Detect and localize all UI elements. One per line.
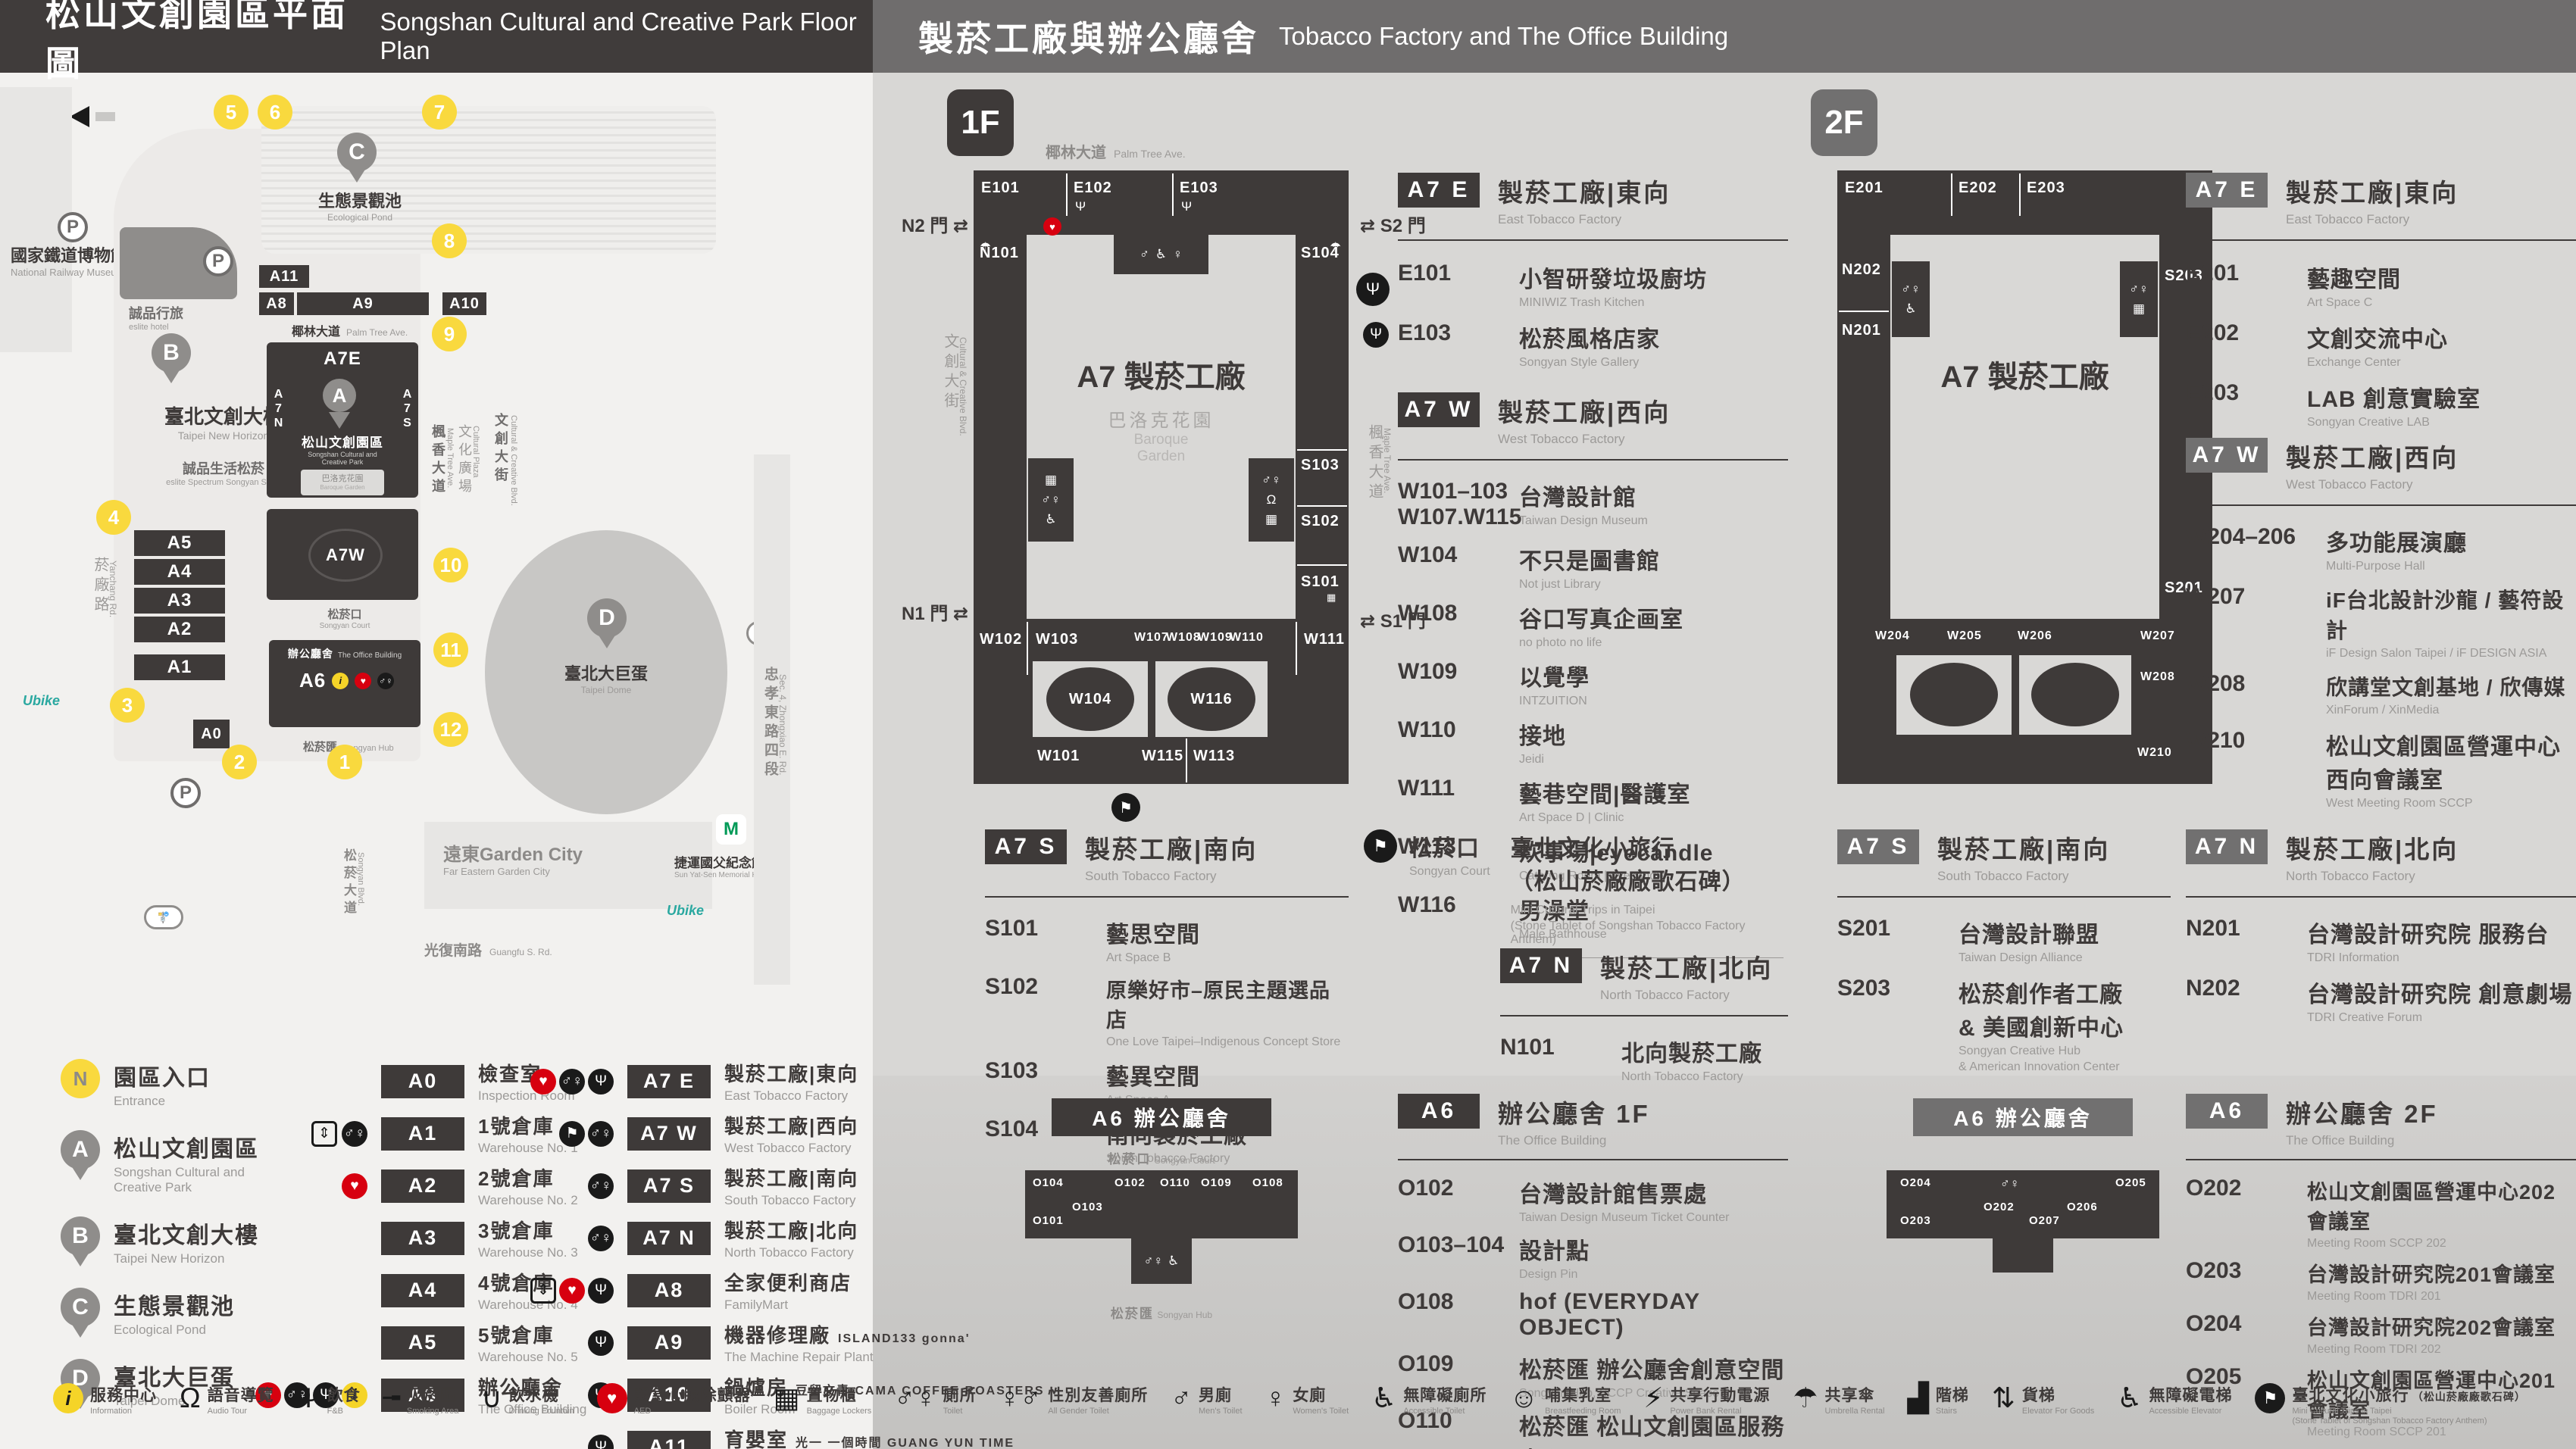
item-code: O203: [2186, 1258, 2307, 1304]
mini-trips-icon: ⚑: [2255, 1383, 2285, 1413]
sec-a7s-zh: 製菸工廠|南向: [1085, 829, 1258, 866]
sec-a7e-en: East Tobacco Factory: [1498, 212, 1671, 227]
item-zh: 文創交流中心: [2307, 320, 2448, 354]
palm-zh: 椰林大道: [292, 321, 340, 339]
item-zh: 原樂好市–原民主題選品店: [1106, 974, 1349, 1033]
guangfu-zh: 光復南路: [424, 939, 482, 960]
toilet-icon: ♂♀: [342, 1121, 367, 1147]
fnb-icon: Ψ: [1363, 322, 1389, 348]
baroque-plan-zh: 巴洛克花園: [1108, 405, 1215, 432]
room-w104: W104: [1069, 691, 1111, 708]
room-w115: W115: [1142, 748, 1183, 765]
entrance-6-num: 6: [270, 101, 280, 124]
a7n-en: North Tobacco Factory: [724, 1245, 858, 1260]
a6-2f-stub: [1993, 1238, 2053, 1273]
item-zh2: 西向會議室: [2326, 761, 2561, 795]
room-w205: W205: [1947, 629, 1982, 643]
item-en: Taiwan Design Museum Ticket Counter: [1519, 1211, 1729, 1225]
legend-n-sym: N: [73, 1067, 88, 1091]
building-a0: A0: [193, 720, 230, 748]
room-w108: W108: [1166, 631, 1201, 645]
stairs-icon: ▟: [1907, 1383, 1928, 1413]
floor-plan-2f: E201 E202 E203 N202 N201 S203 S201 A7 製菸…: [1837, 170, 2212, 784]
sec-badge: A7 E: [1398, 173, 1480, 208]
sec-a7n-zh: 製菸工廠|北向: [1600, 948, 1773, 985]
toilet-icon: ♂: [1140, 247, 1149, 262]
legend-park: A 松山文創園區 Songshan Cultural and Creative …: [61, 1130, 280, 1195]
a7w-label: A7W: [326, 545, 365, 565]
mens-toilet-icon: ♂: [1171, 1383, 1192, 1413]
room-o109: O109: [1201, 1176, 1232, 1189]
item-en: Meeting Room TDRI 202: [2307, 1343, 2556, 1357]
item-en: Art Space B: [1106, 951, 1200, 965]
strip-zh: 女廁: [1293, 1387, 1326, 1404]
item-code: W210: [2186, 728, 2326, 810]
court-zh: 松菸口: [303, 606, 386, 622]
toilet-icon: ♂♀: [377, 673, 394, 689]
toilet-icon: ♂♀: [1041, 492, 1061, 507]
strip-zh: 無障礙電梯: [2149, 1387, 2232, 1404]
a7e-label: A7E: [324, 348, 361, 370]
room-o203: O203: [1900, 1214, 1931, 1227]
item-code: S203: [1837, 976, 1959, 1074]
room-w111: W111: [1304, 631, 1345, 648]
toilet-icon: ♂♀: [559, 1069, 585, 1095]
entrance-3: 3: [110, 688, 145, 723]
room-w110: W110: [1230, 631, 1264, 645]
a6-court-label: 松菸口 Songyan Court: [1108, 1148, 1215, 1167]
a7n-zh: 製菸工廠|北向: [724, 1216, 858, 1244]
strip-en: Mini Cultural Trips in Taipei: [2292, 1407, 2525, 1416]
a7n-code: A7 N: [642, 1226, 696, 1250]
park-en1: Songshan Cultural and: [278, 451, 407, 458]
item-zh: 以覺學: [1519, 659, 1590, 692]
room-w102: W102: [980, 631, 1022, 648]
building-a8: A8: [259, 292, 294, 315]
legend-a9: Ψ A9 機器修理廠ISLAND133 gonna' The Machine R…: [523, 1320, 1045, 1365]
palm-ave-label-plan: 椰林大道 Palm Tree Ave.: [1046, 140, 1186, 162]
a11-label: A11: [270, 268, 299, 286]
office-label: 辦公廳舍 The Office Building: [288, 646, 402, 661]
a6-1f-title-bar: A6 辦公廳舍: [1052, 1098, 1271, 1136]
strip-en: Accessible Elevator: [2149, 1407, 2232, 1416]
right-title-en: Tobacco Factory and The Office Building: [1279, 22, 1728, 51]
item-zh: 松山文創園區營運中心: [2326, 728, 2561, 761]
a6-1f-shape: O104 O103 O102 O110 O109 O108 O101: [1025, 1170, 1298, 1238]
room-w204: W204: [1875, 629, 1910, 643]
item-en: Art Space D | Clinic: [1519, 811, 1690, 825]
facility-strip: i 服務中心 Information Ω 語音導覽 Audio Tour Ψ 飲…: [53, 1383, 2526, 1426]
zhongxiao-en: Sec. 4, Zhongxiao E. Rd.: [777, 674, 788, 775]
strip-stairs: ▟ 階梯 Stairs: [1907, 1383, 1968, 1416]
strip-accessible-elevator: ♿ 無障礙電梯 Accessible Elevator: [2117, 1383, 2232, 1416]
accessible-elevator-icon: ♿: [2117, 1383, 2142, 1413]
item-zh: 台灣設計聯盟: [1959, 916, 2099, 949]
strip-breastfeeding: ☺ 哺集乳室 Breastfeeding Room: [1509, 1383, 1621, 1416]
room-s101: S101: [1301, 573, 1340, 591]
locker-icon: ▦: [2133, 301, 2145, 317]
entrance-7: 7: [422, 95, 457, 130]
aed-icon: ♥: [342, 1173, 367, 1199]
plaza-label-en: Cultural Plaza: [471, 426, 480, 477]
pin-a-letter: A: [333, 384, 347, 408]
strip-en: Baggage Lockers: [807, 1407, 872, 1416]
maple-label-en: Maple Tree Ave.: [445, 428, 455, 488]
room-s103: S103: [1301, 457, 1340, 474]
item-en2: & American Innovation Center: [1959, 1060, 2124, 1074]
pond-en: Ecological Pond: [292, 212, 428, 223]
info-icon: i: [332, 673, 349, 689]
umbrella-icon: ☂: [980, 240, 991, 255]
a6-map-row: A6 i ♥ ♂♀: [299, 669, 394, 692]
item-zh: hof (EVERYDAY OBJECT): [1519, 1289, 1788, 1341]
room-w208: W208: [2140, 670, 2175, 684]
facility-2f: ♂♀ ♿: [1892, 261, 1930, 337]
a7w-badge: A7 W: [627, 1117, 711, 1151]
room-w103: W103: [1036, 631, 1078, 648]
badge-a6-1f: A6: [1421, 1098, 1456, 1124]
bus-stop-icon: 🚏: [144, 905, 183, 929]
strip-zh: 服務中心: [90, 1387, 157, 1404]
a7w-code: A7 W: [640, 1122, 698, 1145]
strip-en: Stairs: [1936, 1407, 1969, 1416]
east-wing-2f: [1837, 170, 2212, 235]
building-a7w: A7W: [267, 509, 418, 600]
a6-plan-1f: A6 辦公廳舍 松菸口 Songyan Court O104 O103 O102…: [1010, 1083, 1313, 1371]
strip-toilet: ♂♀ 廁所 Toilet: [894, 1383, 977, 1416]
audio-tour-icon: Ω: [1267, 492, 1277, 507]
item-zh: 接地: [1519, 717, 1566, 751]
room-w101: W101: [1037, 748, 1080, 765]
a4-code: A4: [408, 1279, 438, 1302]
park-en2: Creative Park: [278, 458, 407, 466]
badge-2f-a7n: A7 N: [2195, 834, 2259, 860]
pond-label: 生態景觀池 Ecological Pond: [292, 188, 428, 223]
west-facility-block: ▦ ♂♀ ♿: [1028, 458, 1074, 542]
a7w-en: West Tobacco Factory: [724, 1141, 858, 1156]
eslite-hotel-en: eslite hotel: [129, 323, 183, 332]
a2-code: A2: [408, 1174, 438, 1198]
sec-2f-a7s-en: South Tobacco Factory: [1937, 869, 2110, 884]
north-wing: [974, 235, 1027, 619]
elevator-icon: ⇕: [311, 1121, 337, 1147]
a8-zh: 全家便利商店: [724, 1268, 852, 1296]
badge-2f-a7s: A7 S: [1847, 834, 1910, 860]
court-en: Songyan Court: [303, 622, 386, 630]
sec-a7w-zh: 製菸工廠|西向: [1498, 392, 1671, 429]
court-title-en: Songyan Court: [1409, 865, 1499, 879]
legend-a7s: ♂♀ A7 S 製菸工廠|南向 South Tobacco Factory: [523, 1163, 1045, 1208]
floor-2f-label: 2F: [1824, 104, 1863, 142]
court-t1: 臺北文化小旅行: [1511, 829, 1788, 863]
fnb-icon: Ψ: [588, 1330, 614, 1356]
pin-a: A: [323, 379, 356, 412]
north-wing-2f: [1837, 235, 1890, 619]
a5-code: A5: [408, 1331, 438, 1354]
a7n-label: A7N: [271, 388, 285, 431]
all-gender-toilet-icon: ♀♂: [999, 1383, 1042, 1413]
court-label: 松菸口 Songyan Court: [303, 606, 386, 630]
item-en: Multi-Purpose Hall: [2326, 560, 2467, 573]
a3-code: A3: [408, 1226, 438, 1250]
fnb-icon: Ψ: [297, 1383, 320, 1413]
item-en: Art Space C: [2307, 296, 2401, 310]
legend-new-horizon: B 臺北文創大樓 Taipei New Horizon: [61, 1216, 280, 1266]
baroque-plan-en2: Garden: [1108, 448, 1215, 465]
legend-a-en: Songshan Cultural and Creative Park: [114, 1165, 280, 1195]
strip-en: All Gender Toilet: [1048, 1407, 1148, 1416]
item-code: O103–104: [1398, 1232, 1519, 1282]
strip-zh: 男廁: [1199, 1387, 1232, 1404]
item-en: One Love Taipei–Indigenous Concept Store: [1106, 1035, 1349, 1049]
item-code: S101: [985, 916, 1106, 965]
parking-icon: P: [170, 778, 201, 808]
room-e101: E101: [981, 180, 1020, 197]
elevator-icon: ⇕: [530, 1278, 556, 1304]
accessible-toilet-icon: ♿: [1045, 512, 1056, 527]
strip-zh: 語音導覽: [208, 1387, 274, 1404]
strip-power-bank: ⚡ 共享行動電源 Power Bank Rental: [1643, 1383, 1770, 1416]
fnb-icon: Ψ: [1181, 199, 1192, 214]
item-zh: LAB 創意實驗室: [2307, 380, 2481, 414]
item-zh: 不只是圖書館: [1519, 542, 1660, 576]
toilet-icon: ♂♀: [1261, 473, 1281, 488]
item-zh: 欣講堂文創基地 / 欣傳媒: [2326, 671, 2565, 701]
toilet-icon: ♂♀: [588, 1121, 614, 1147]
a9-brand: ISLAND133 gonna': [838, 1332, 971, 1345]
legend-a11: Ψ A11 育嬰室光一 一個時間 GUANG YUN TIME The Nurs…: [523, 1425, 1045, 1449]
a7e-code: A7 E: [643, 1070, 695, 1093]
strip-en: Toilet: [943, 1407, 977, 1416]
mini-trips-icon: ⚑: [1364, 829, 1397, 863]
room-o206: O206: [2067, 1201, 2098, 1213]
plan-ccblvd-en: Cultural & Creative Blvd.: [958, 337, 968, 436]
sec-2f-a7w-en: West Tobacco Factory: [2286, 477, 2459, 492]
sec-a6-1f-en: The Office Building: [1498, 1133, 1650, 1148]
right-title-zh: 製菸工廠與辦公廳舍: [918, 11, 1259, 61]
plan-title-1f: A7 製菸工廠: [1077, 352, 1245, 396]
strip-goods-elevator: ⇅ 貨梯 Elevator For Goods: [1992, 1383, 2094, 1416]
a8-label: A8: [266, 295, 287, 313]
sec-2f-a7e: A7 E 製菸工廠|東向 East Tobacco Factory E201 藝…: [2186, 173, 2576, 429]
east-wing: [974, 170, 1349, 235]
a6-court-zh: 松菸口: [1108, 1152, 1151, 1166]
court-t2: （松山菸廠廠歌石碑）: [1511, 863, 1788, 896]
item-en: MINIWIZ Trash Kitchen: [1519, 296, 1707, 310]
legend-entrance: N 園區入口 Entrance: [61, 1059, 280, 1109]
toilet-icon: ♂♀: [2129, 282, 2149, 297]
legend-c-zh: 生態景觀池: [114, 1288, 235, 1321]
item-code: N201: [2186, 916, 2307, 965]
goods-elevator-icon: ⇅: [1992, 1383, 2015, 1413]
sec-2f-a7w-zh: 製菸工廠|西向: [2286, 438, 2459, 474]
entrance-10-num: 10: [440, 554, 462, 577]
a9-code: A9: [655, 1331, 684, 1354]
court-e2: (Stone Tablet of Songshan Tobacco Factor…: [1511, 920, 1788, 947]
strip-zh: 臺北文化小旅行: [2292, 1387, 2409, 1404]
building-a3: A3: [134, 588, 225, 614]
item-code: W204–206: [2186, 524, 2326, 573]
info-icon: i: [53, 1383, 83, 1413]
a11-badge: A11: [627, 1431, 711, 1449]
ccblvd-label-en: Cultural & Creative Blvd.: [509, 415, 518, 506]
item-code: W101–103: [1398, 479, 1519, 504]
entrance-7-num: 7: [434, 101, 445, 124]
a8-badge: A8: [627, 1274, 711, 1307]
parking-icon: P: [203, 246, 233, 276]
item-en: Taiwan Design Alliance: [1959, 951, 2099, 965]
item-zh: 設計點: [1519, 1232, 1590, 1266]
metro-logo: M: [716, 814, 746, 845]
womens-toilet-icon: ♀: [1265, 1383, 1286, 1413]
a0-badge: A0: [381, 1065, 464, 1098]
item-en: North Tobacco Factory: [1621, 1070, 1762, 1084]
w116-oval: W116: [1168, 667, 1255, 731]
aed-icon: ♥: [1043, 217, 1061, 236]
toilet-icon: ♂♀: [1144, 1254, 1164, 1269]
room-o110: O110: [1160, 1176, 1190, 1189]
item-en: iF Design Salon Taipei / iF DESIGN ASIA: [2326, 647, 2576, 660]
a4-label: A4: [167, 561, 192, 582]
badge-a6-2f: A6: [2209, 1098, 2244, 1124]
sec-badge: A7 N: [2186, 829, 2268, 864]
entrance-11-num: 11: [440, 639, 461, 662]
strip-zh: 飲食: [327, 1387, 361, 1404]
floor-plan-1f: E101 E102 Ψ E103 Ψ ♂ ♿ ♀ N101 S104 S103 …: [974, 170, 1349, 784]
item-zh: 台灣設計研究院 創意劇場: [2307, 976, 2572, 1009]
entrance-4-num: 4: [108, 506, 119, 529]
strip-en: F&B: [327, 1407, 361, 1416]
sec-2f-a7n-en: North Tobacco Factory: [2286, 869, 2459, 884]
item-code: W208: [2186, 671, 2326, 717]
a0-label: A0: [201, 726, 222, 743]
plan-title-2f: A7 製菸工廠: [1940, 352, 2109, 396]
a7w-oval: A7W: [308, 529, 383, 582]
legend-a-sym: A: [72, 1137, 89, 1163]
room-w113: W113: [1193, 748, 1235, 765]
entrance-3-num: 3: [122, 694, 133, 717]
item-en: Songyan Creative LAB: [2307, 416, 2481, 429]
item-zh: 松山文創園區營運中心202會議室: [2307, 1176, 2576, 1235]
badge-a7s: A7 S: [995, 834, 1058, 860]
aed-icon: ♥: [597, 1383, 627, 1413]
guangfu-label: 光復南路 Guangfu S. Rd.: [424, 939, 552, 960]
item-code: W108: [1398, 601, 1519, 650]
sec-2f-a7n: A7 N 製菸工廠|北向 North Tobacco Factory N201 …: [2186, 829, 2576, 1025]
item-en: West Meeting Room SCCP: [2326, 797, 2561, 810]
dome-label: 臺北大巨蛋 Taipei Dome: [542, 660, 671, 695]
sec-a6-2f-zh: 辦公廳舍 2F: [2286, 1094, 2438, 1130]
mini-trips-icon: ⚑: [559, 1121, 585, 1147]
a8-en: FamilyMart: [724, 1298, 852, 1313]
room-o104: O104: [1033, 1176, 1064, 1189]
east-facility-block: ♂♀ Ω ▦: [1249, 458, 1294, 542]
plan-maple-en: Maple Tree Ave.: [1382, 428, 1393, 494]
a7e-en: East Tobacco Factory: [724, 1088, 858, 1104]
strip-fountain: ∪ 飲水機 Drinking Fountain: [481, 1383, 574, 1416]
strip-aed: ♥ 緊急心臟除顫器 AED: [597, 1383, 751, 1416]
pond-zh: 生態景觀池: [292, 188, 428, 212]
item-en: Exchange Center: [2307, 356, 2448, 370]
guangfu-en: Guangfu S. Rd.: [489, 947, 552, 957]
item-en: Songyan Style Gallery: [1519, 356, 1660, 370]
room-o101: O101: [1033, 1214, 1064, 1227]
item-code: E203: [2186, 380, 2307, 429]
item-zh: 谷口写真企画室: [1519, 601, 1683, 634]
entrance-2: 2: [222, 745, 257, 779]
item-en: Taiwan Design Museum: [1519, 514, 1648, 528]
building-a7e: A7E A7N A7S A 松山文創園區 Songshan Cultural a…: [267, 342, 418, 498]
entrance-legend-icon: N: [61, 1059, 100, 1098]
door-n1: N1 門 ⇄: [902, 598, 968, 625]
w-oval2-2f: [2031, 663, 2119, 726]
courtyard-entry: ♂ ♿ ♀: [1114, 235, 1208, 274]
item-code: N202: [2186, 976, 2307, 1025]
toilet-icon: ♀: [1173, 247, 1183, 262]
a1-badge: A1: [381, 1117, 464, 1151]
fnb-icon: Ψ: [588, 1069, 614, 1095]
office-zh: 辦公廳舍: [288, 646, 333, 661]
item-code: S102: [985, 974, 1106, 1049]
a7s-en: South Tobacco Factory: [724, 1193, 858, 1208]
legend-a-zh: 松山文創園區: [114, 1130, 280, 1163]
sec-badge: A7 W: [1398, 392, 1480, 427]
item-code2: W107.W115: [1398, 504, 1519, 530]
aed-icon: ♥: [530, 1069, 556, 1095]
item-zh: 台灣設計研究院202會議室: [2307, 1311, 2556, 1341]
item-en: Not just Library: [1519, 578, 1660, 592]
accessible-toilet-icon: ♿: [1371, 1383, 1396, 1413]
a6-2f-shape: O204 O203 O202 O207 O206 O205 ♂♀: [1887, 1170, 2159, 1238]
strip-en: Women's Toilet: [1293, 1407, 1349, 1416]
dome-en: Taipei Dome: [542, 685, 671, 695]
door-n2: N2 門 ⇄: [902, 211, 968, 237]
a11-zh: 育嬰室: [724, 1429, 788, 1449]
ubike-logo: Ubike: [23, 693, 60, 709]
legend-n-en: Entrance: [114, 1094, 211, 1109]
item-code: W111: [1398, 776, 1519, 825]
legend-a7w: ⚑ ♂♀ A7 W 製菸工廠|西向 West Tobacco Factory: [523, 1111, 1045, 1156]
toilet-icon: ♂♀: [588, 1226, 614, 1251]
toilet-icon: ♂♀: [894, 1383, 936, 1413]
room-w116: W116: [1190, 691, 1232, 708]
a9-label: A9: [352, 295, 374, 313]
room-o103: O103: [1072, 1201, 1103, 1213]
drinking-fountain-icon: ∪: [481, 1383, 502, 1413]
garden-city-label: 遠東Garden City Far Eastern Garden City: [443, 839, 583, 877]
room-o207: O207: [2029, 1214, 2060, 1227]
building-a10: A10: [442, 292, 486, 315]
a7s-zh: 製菸工廠|南向: [724, 1163, 858, 1191]
toilet-icon: ♂♀: [588, 1173, 614, 1199]
strip-en: Breastfeeding Room: [1545, 1407, 1621, 1416]
room-e202: E202: [1959, 180, 1997, 197]
legend-pond: C 生態景觀池 Ecological Pond: [61, 1288, 280, 1338]
a7s-badge: A7 S: [627, 1170, 711, 1203]
a1-code: A1: [408, 1122, 438, 1145]
sec-a7n-en: North Tobacco Factory: [1600, 988, 1773, 1003]
entrance-9-num: 9: [444, 323, 455, 346]
strip-zh: 置物櫃: [807, 1387, 857, 1404]
strip-en: Power Bank Rental: [1670, 1407, 1770, 1416]
strip-fnb: Ψ 飲食 F&B: [297, 1383, 361, 1416]
item-zh: 台灣設計館: [1519, 479, 1648, 512]
entrance-5: 5: [214, 95, 249, 130]
strip-en: Smoking Area: [407, 1407, 458, 1416]
pin-c: C: [337, 133, 377, 172]
item-en: Meeting Room TDRI 201: [2307, 1290, 2556, 1304]
item-code: W109: [1398, 659, 1519, 708]
